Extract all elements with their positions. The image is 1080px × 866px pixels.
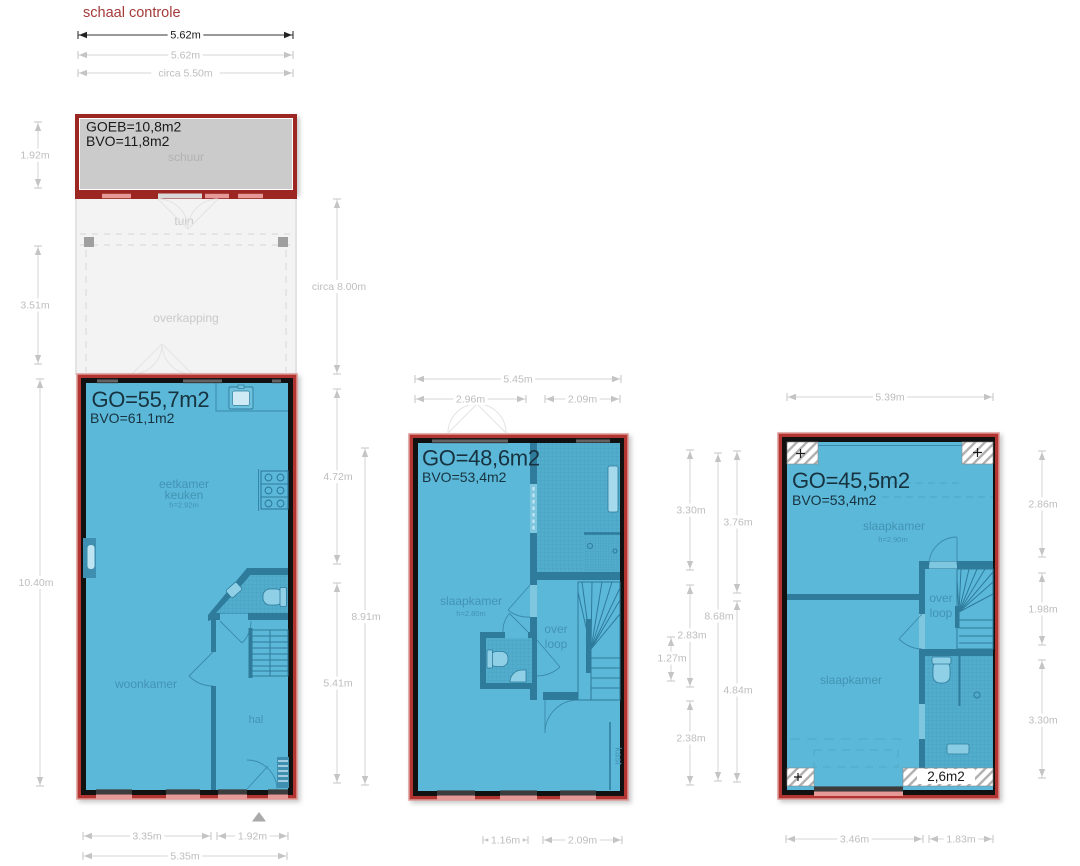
svg-text:kast: kast <box>613 747 624 765</box>
svg-text:3.35m: 3.35m <box>132 831 161 843</box>
svg-text:2,6m2: 2,6m2 <box>927 769 965 784</box>
svg-text:loop: loop <box>930 606 953 620</box>
svg-text:5.41m: 5.41m <box>323 678 352 690</box>
svg-text:3.30m: 3.30m <box>676 505 705 517</box>
svg-text:circa 8.00m: circa 8.00m <box>312 281 367 293</box>
svg-text:1.16m: 1.16m <box>491 835 520 847</box>
svg-text:1.92m: 1.92m <box>20 150 49 162</box>
svg-text:BVO=61,1m2: BVO=61,1m2 <box>90 410 175 426</box>
svg-text:h=2.92m: h=2.92m <box>169 501 198 510</box>
svg-text:2.38m: 2.38m <box>676 733 705 745</box>
svg-text:h=2.80m: h=2.80m <box>456 609 485 618</box>
svg-text:loop: loop <box>545 637 568 651</box>
svg-text:1.92m: 1.92m <box>238 831 267 843</box>
svg-text:slaapkamer: slaapkamer <box>863 519 925 533</box>
svg-text:schaal controle: schaal controle <box>83 5 181 21</box>
svg-text:overkapping: overkapping <box>153 311 218 325</box>
svg-text:schuur: schuur <box>168 150 204 164</box>
svg-text:1.83m: 1.83m <box>946 834 975 846</box>
svg-text:slaapkamer: slaapkamer <box>820 673 882 687</box>
svg-text:over: over <box>929 591 952 605</box>
svg-text:1.98m: 1.98m <box>1028 604 1057 616</box>
svg-text:BVO=11,8m2: BVO=11,8m2 <box>86 133 170 149</box>
svg-text:5.62m: 5.62m <box>171 50 200 62</box>
svg-text:over: over <box>544 622 567 636</box>
svg-text:circa 5.50m: circa 5.50m <box>158 68 213 80</box>
svg-text:5.62m: 5.62m <box>170 30 201 42</box>
svg-text:4.84m: 4.84m <box>723 685 752 697</box>
svg-text:3.30m: 3.30m <box>1028 715 1057 727</box>
svg-text:woonkamer: woonkamer <box>114 677 177 691</box>
svg-text:1.27m: 1.27m <box>657 653 686 665</box>
svg-text:5.39m: 5.39m <box>875 392 904 404</box>
svg-text:4.72m: 4.72m <box>323 471 352 483</box>
svg-text:GO=45,5m2: GO=45,5m2 <box>792 468 910 493</box>
svg-text:BVO=53,4m2: BVO=53,4m2 <box>792 492 877 508</box>
svg-text:slaapkamer: slaapkamer <box>440 594 502 608</box>
svg-text:3.46m: 3.46m <box>840 834 869 846</box>
svg-text:10.40m: 10.40m <box>18 577 53 589</box>
svg-text:5.35m: 5.35m <box>170 851 199 863</box>
svg-text:8.91m: 8.91m <box>351 611 380 623</box>
svg-text:2.86m: 2.86m <box>1028 499 1057 511</box>
svg-text:3.76m: 3.76m <box>723 517 752 529</box>
svg-text:GO=55,7m2: GO=55,7m2 <box>92 387 210 412</box>
svg-text:h=2.90m: h=2.90m <box>878 535 907 544</box>
svg-text:5.45m: 5.45m <box>503 374 532 386</box>
svg-text:GO=48,6m2: GO=48,6m2 <box>422 446 540 471</box>
svg-text:3.51m: 3.51m <box>20 300 49 312</box>
svg-text:2.09m: 2.09m <box>568 394 597 406</box>
svg-text:8.68m: 8.68m <box>704 611 733 623</box>
svg-text:2.96m: 2.96m <box>456 394 485 406</box>
svg-text:2.83m: 2.83m <box>677 630 706 642</box>
svg-text:2.09m: 2.09m <box>568 835 597 847</box>
svg-text:hal: hal <box>249 714 264 726</box>
svg-text:BVO=53,4m2: BVO=53,4m2 <box>422 469 507 485</box>
